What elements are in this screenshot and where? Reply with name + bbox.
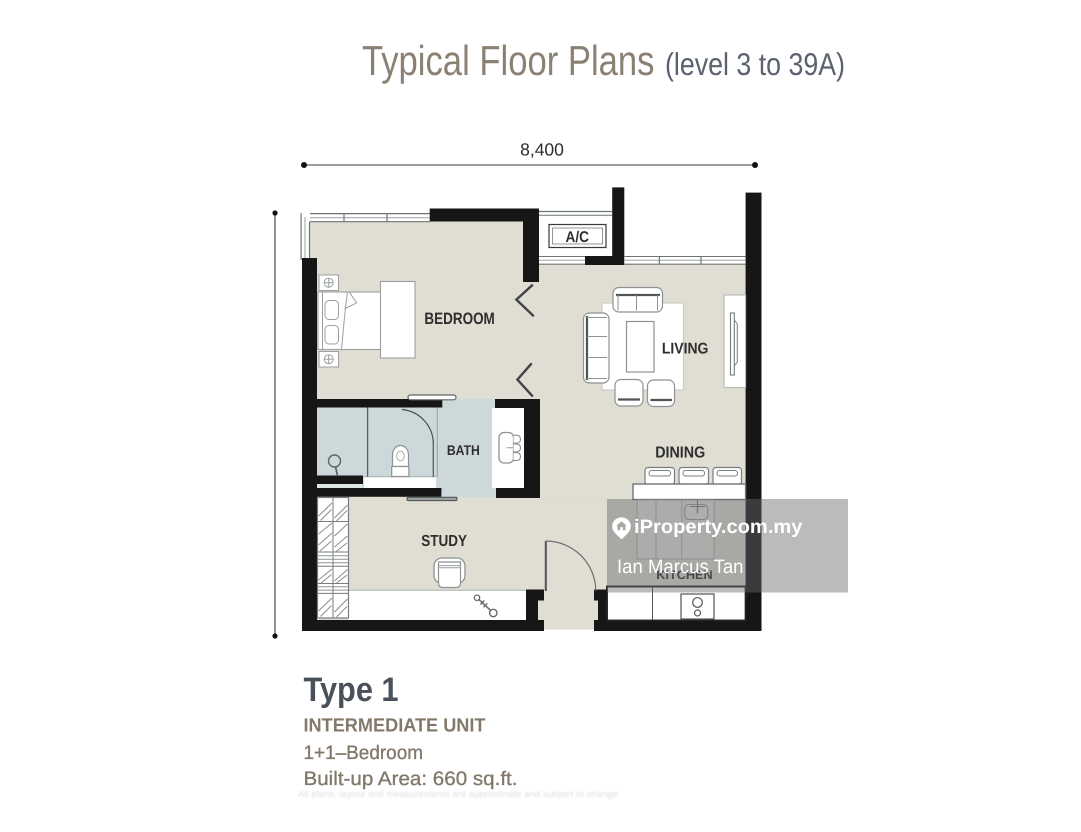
svg-text:INTERMEDIATE UNIT: INTERMEDIATE UNIT xyxy=(304,716,486,737)
svg-text:(level 3 to 39A): (level 3 to 39A) xyxy=(665,46,845,82)
svg-text:1+1–Bedroom: 1+1–Bedroom xyxy=(304,742,424,764)
svg-text:LIVING: LIVING xyxy=(662,341,709,358)
svg-text:iProperty.com.my: iProperty.com.my xyxy=(634,516,803,538)
svg-text:All plans, layout and measurem: All plans, layout and measurements are a… xyxy=(298,789,618,799)
svg-text:BEDROOM: BEDROOM xyxy=(424,310,494,328)
svg-text:Type 1: Type 1 xyxy=(304,671,399,709)
svg-text:Ian Marcus Tan: Ian Marcus Tan xyxy=(617,556,744,578)
svg-text:8,400: 8,400 xyxy=(520,140,564,160)
svg-text:STUDY: STUDY xyxy=(421,533,467,550)
svg-text:DINING: DINING xyxy=(655,445,705,462)
svg-text:Typical Floor Plans: Typical Floor Plans xyxy=(362,37,655,84)
svg-text:A/C: A/C xyxy=(566,229,590,246)
svg-text:BATH: BATH xyxy=(447,442,480,458)
svg-text:Built-up Area: 660 sq.ft.: Built-up Area: 660 sq.ft. xyxy=(304,768,518,790)
